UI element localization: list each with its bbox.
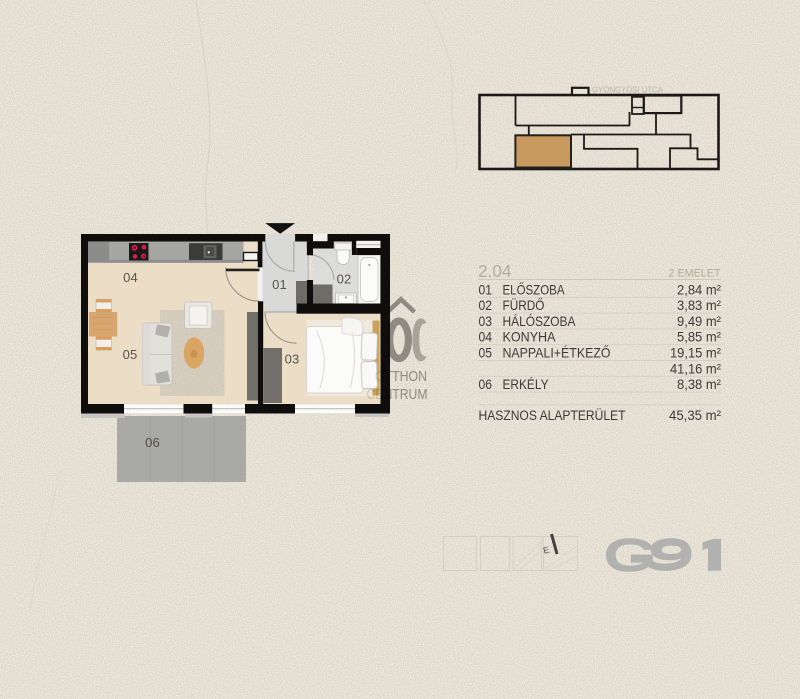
svg-text:04: 04 [123,270,138,285]
svg-text:ELŐSZOBA: ELŐSZOBA [503,282,566,297]
svg-text:02: 02 [479,298,493,313]
svg-text:06: 06 [479,377,493,392]
svg-text:2 EMELET: 2 EMELET [669,268,721,280]
svg-text:2.04: 2.04 [478,261,512,281]
svg-text:03: 03 [285,352,300,367]
svg-text:19,15 m²: 19,15 m² [670,346,721,361]
svg-text:8,38 m²: 8,38 m² [677,377,721,392]
svg-text:CENTRUM: CENTRUM [367,386,428,403]
svg-text:06: 06 [145,435,160,450]
svg-text:OTTHON: OTTHON [375,368,427,385]
svg-text:9,49 m²: 9,49 m² [677,314,721,329]
svg-text:NAPPALI+ÉTKEZŐ: NAPPALI+ÉTKEZŐ [503,346,611,361]
svg-text:03: 03 [479,314,493,329]
svg-text:04: 04 [479,330,493,345]
svg-text:02: 02 [337,272,352,287]
svg-text:05: 05 [123,347,138,362]
svg-text:ERKÉLY: ERKÉLY [503,377,549,392]
svg-text:HÁLÓSZOBA: HÁLÓSZOBA [503,314,577,329]
svg-text:3,83 m²: 3,83 m² [677,298,721,313]
svg-text:GYÖNGYÖSI UTCA: GYÖNGYÖSI UTCA [592,86,664,95]
svg-text:5,85 m²: 5,85 m² [677,330,721,345]
svg-text:01: 01 [272,277,287,292]
svg-text:2,84 m²: 2,84 m² [677,282,721,297]
svg-text:HASZNOS ALAPTERÜLET: HASZNOS ALAPTERÜLET [479,408,626,423]
svg-text:FÜRDŐ: FÜRDŐ [503,298,545,313]
svg-text:KONYHA: KONYHA [503,330,557,345]
svg-text:05: 05 [479,346,493,361]
svg-text:41,16 m²: 41,16 m² [670,361,721,376]
svg-text:45,35 m²: 45,35 m² [669,408,722,423]
svg-text:01: 01 [479,282,493,297]
